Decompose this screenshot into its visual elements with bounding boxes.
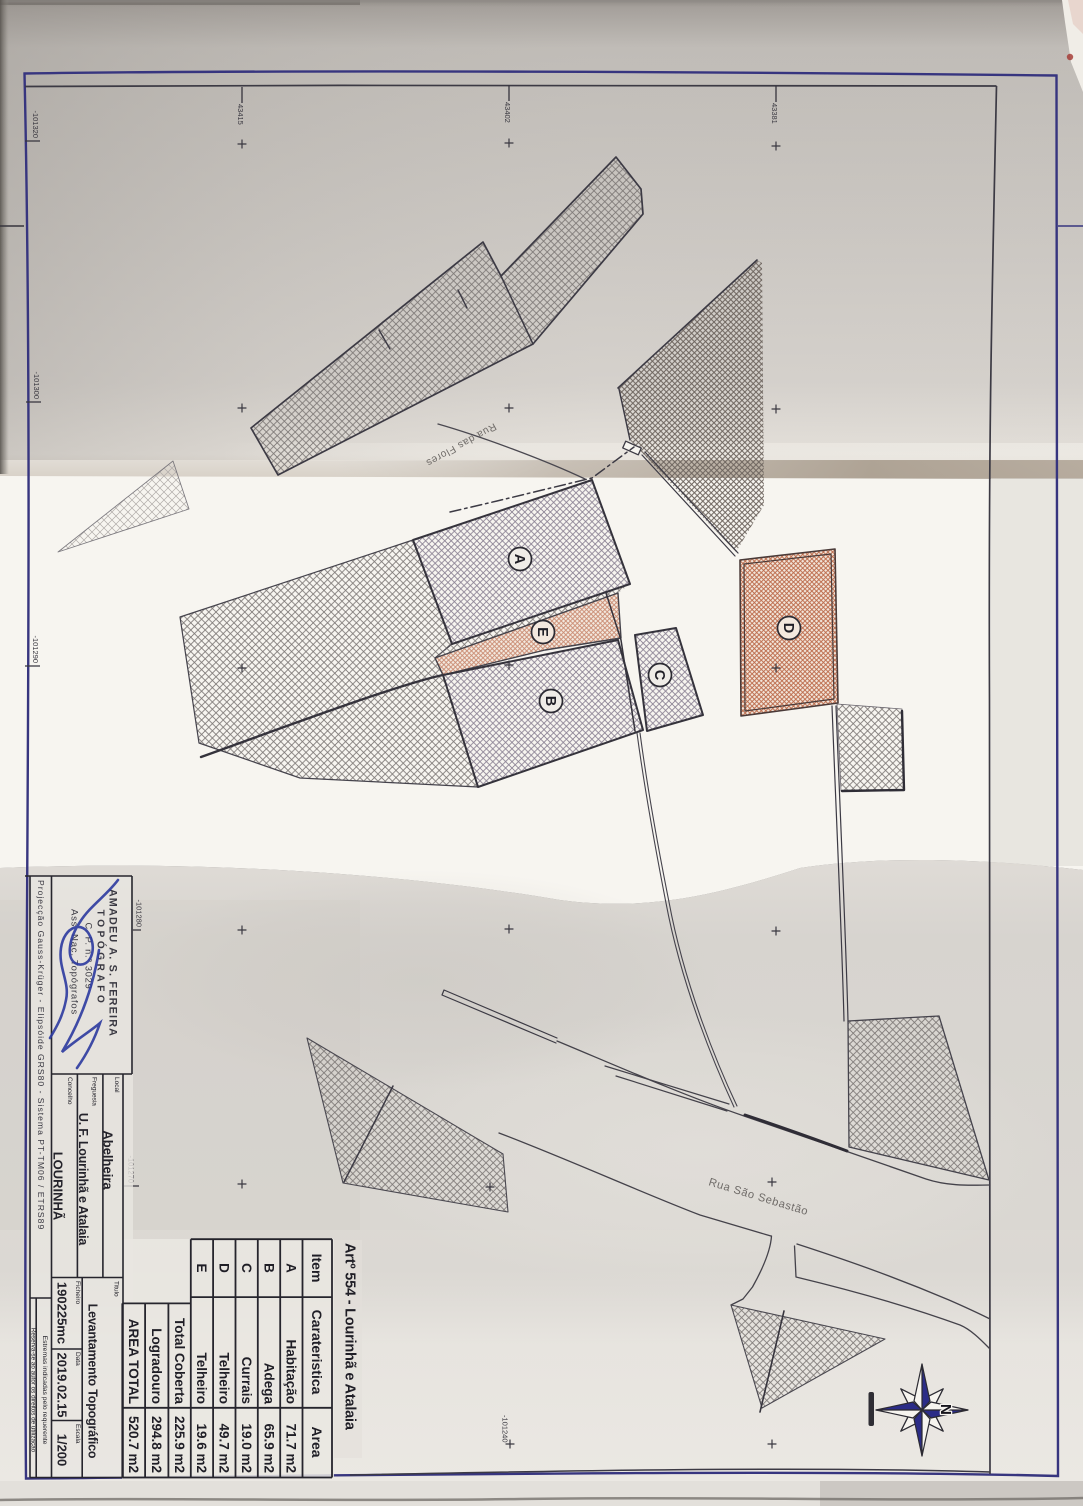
svg-text:C: C	[651, 670, 667, 681]
svg-text:Levantamento Topográfico: Levantamento Topográfico	[85, 1304, 99, 1459]
svg-text:D: D	[217, 1263, 232, 1273]
svg-text:E: E	[534, 627, 550, 637]
svg-text:43415: 43415	[236, 104, 245, 125]
svg-text:B: B	[542, 696, 558, 706]
svg-text:-101280: -101280	[135, 899, 144, 927]
svg-text:Local: Local	[113, 1077, 120, 1093]
svg-text:294.8 m2: 294.8 m2	[149, 1416, 164, 1473]
svg-text:Habitação: Habitação	[284, 1339, 299, 1404]
svg-text:-101320: -101320	[31, 110, 40, 138]
svg-text:AREA TOTAL: AREA TOTAL	[126, 1319, 141, 1404]
svg-text:E: E	[194, 1263, 209, 1272]
svg-text:190225mc: 190225mc	[54, 1282, 69, 1344]
svg-text:225.9 m2: 225.9 m2	[172, 1416, 187, 1473]
svg-text:520.7 m2: 520.7 m2	[126, 1416, 141, 1473]
svg-text:C: C	[239, 1263, 254, 1273]
svg-text:-101300: -101300	[32, 371, 41, 399]
svg-text:Concelho: Concelho	[66, 1077, 73, 1105]
svg-text:-101290: -101290	[31, 635, 40, 663]
svg-text:Area: Area	[309, 1426, 325, 1457]
svg-text:43402: 43402	[503, 102, 512, 123]
svg-text:Reserva-se ao autor os direito: Reserva-se ao autor os direitos de utili…	[29, 1328, 36, 1453]
svg-text:Abelheira: Abelheira	[100, 1130, 115, 1190]
svg-text:Total Coberta: Total Coberta	[172, 1318, 187, 1404]
svg-text:AMADEU A. S. FEREIRA: AMADEU A. S. FEREIRA	[107, 889, 119, 1037]
svg-text:43381: 43381	[770, 103, 779, 124]
svg-text:Telheiro: Telheiro	[194, 1352, 209, 1404]
svg-text:A: A	[284, 1263, 299, 1273]
svg-text:Data: Data	[74, 1352, 81, 1366]
svg-text:D: D	[780, 623, 796, 633]
svg-text:Item: Item	[309, 1254, 325, 1283]
svg-text:Estremas indicadas pelo requer: Estremas indicadas pelo requerente	[41, 1336, 48, 1445]
svg-text:LOURINHÃ: LOURINHÃ	[50, 1152, 65, 1221]
svg-text:Adega: Adega	[261, 1363, 276, 1405]
svg-text:19.0 m2: 19.0 m2	[239, 1423, 254, 1473]
svg-text:2019.02.15: 2019.02.15	[54, 1352, 69, 1417]
svg-text:Freguesia: Freguesia	[90, 1077, 97, 1106]
svg-text:Logradouro: Logradouro	[149, 1328, 164, 1404]
svg-text:Carateristica: Carateristica	[309, 1310, 325, 1395]
svg-text:U. F. Lourinhã e Atalaia: U. F. Lourinhã e Atalaia	[76, 1113, 90, 1247]
svg-text:19.6 m2: 19.6 m2	[194, 1423, 209, 1473]
svg-text:49.7 m2: 49.7 m2	[217, 1423, 232, 1473]
svg-text:B: B	[261, 1263, 276, 1273]
svg-text:A: A	[511, 554, 527, 565]
svg-text:Telheiro: Telheiro	[217, 1352, 232, 1404]
svg-text:N: N	[937, 1404, 954, 1415]
svg-text:Titulo: Titulo	[112, 1281, 119, 1297]
svg-text:Ficheiro: Ficheiro	[74, 1281, 81, 1305]
svg-text:65.9 m2: 65.9 m2	[261, 1423, 276, 1473]
svg-text:1/200: 1/200	[54, 1434, 69, 1467]
svg-text:Projecção Gauss-Krüger - Elips: Projecção Gauss-Krüger - Elipsóide GRS80…	[36, 880, 46, 1230]
svg-text:71.7 m2: 71.7 m2	[284, 1423, 299, 1473]
svg-text:-101240: -101240	[501, 1415, 510, 1443]
svg-text:Escala: Escala	[74, 1424, 81, 1444]
svg-text:Currais: Currais	[239, 1357, 254, 1404]
svg-text:Artº 554 - Lourinhã e Atalaia: Artº 554 - Lourinhã e Atalaia	[342, 1243, 358, 1431]
